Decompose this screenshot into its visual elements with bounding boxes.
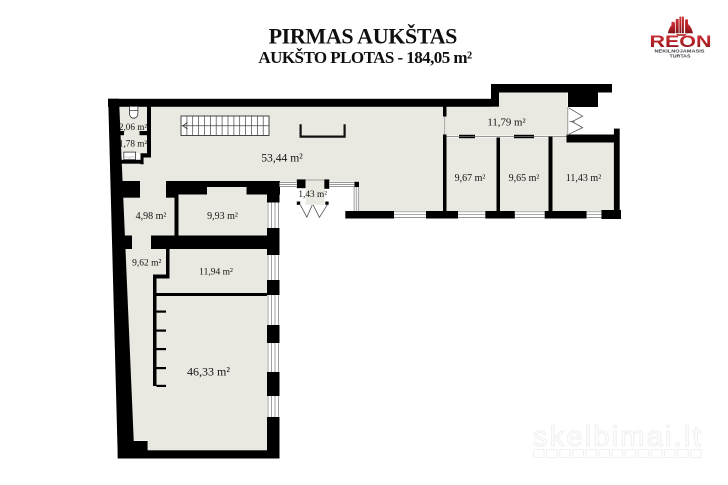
svg-text:46,33 m²: 46,33 m² [187,365,230,379]
svg-text:9,65 m²: 9,65 m² [509,173,540,184]
svg-text:TURTAS: TURTAS [670,53,691,58]
svg-text:1,78 m²: 1,78 m² [119,139,148,149]
svg-text:9,67 m²: 9,67 m² [455,173,486,184]
svg-text:53,44 m²: 53,44 m² [261,152,303,165]
svg-text:skelbimai.lt: skelbimai.lt [533,421,703,453]
svg-text:2,06 m²: 2,06 m² [119,122,148,132]
svg-text:AUKŠTO PLOTAS - 184,05 m²: AUKŠTO PLOTAS - 184,05 m² [258,48,472,67]
svg-text:1,43 m²: 1,43 m² [298,190,327,200]
svg-text:11,94 m²: 11,94 m² [199,267,233,277]
svg-text:9,62 m²: 9,62 m² [132,259,161,269]
svg-text:11,43 m²: 11,43 m² [566,173,601,184]
svg-text:9,93 m²: 9,93 m² [207,211,238,222]
svg-text:11,79 m²: 11,79 m² [487,116,525,128]
svg-text:4,98 m²: 4,98 m² [136,211,167,222]
svg-text:PIRMAS AUKŠTAS: PIRMAS AUKŠTAS [269,24,458,49]
